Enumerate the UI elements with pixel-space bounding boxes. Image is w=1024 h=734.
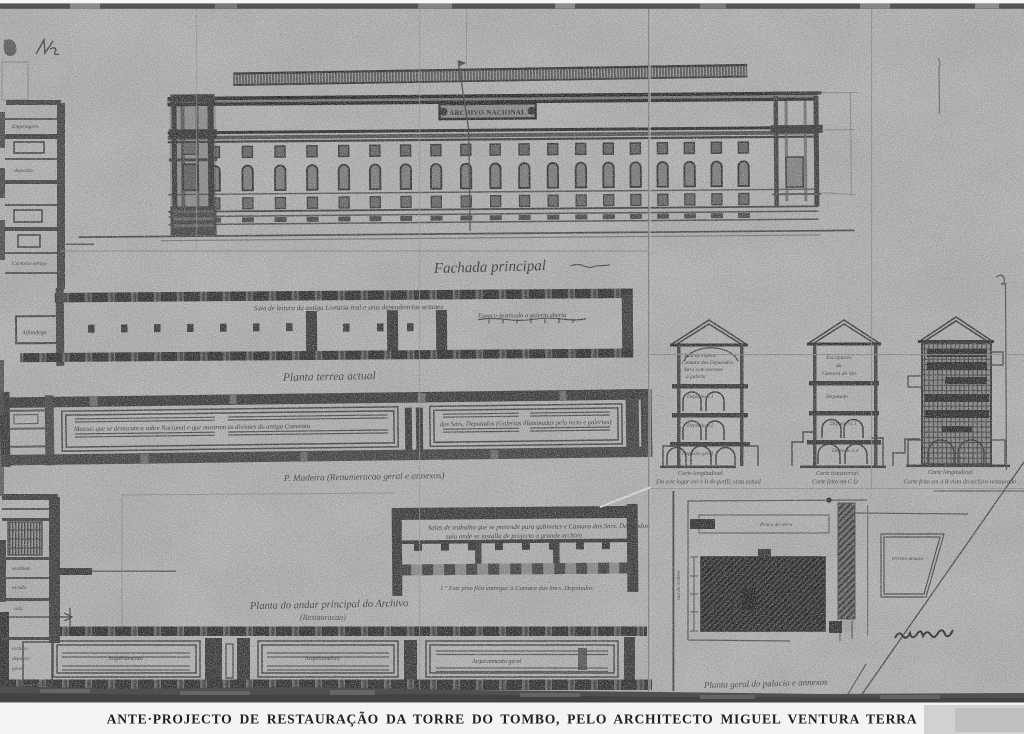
svg-text:ANTE·PROJECTO DE RESTAURAÇÃO D: ANTE·PROJECTO DE RESTAURAÇÃO DA TORRE DO… (107, 710, 918, 727)
